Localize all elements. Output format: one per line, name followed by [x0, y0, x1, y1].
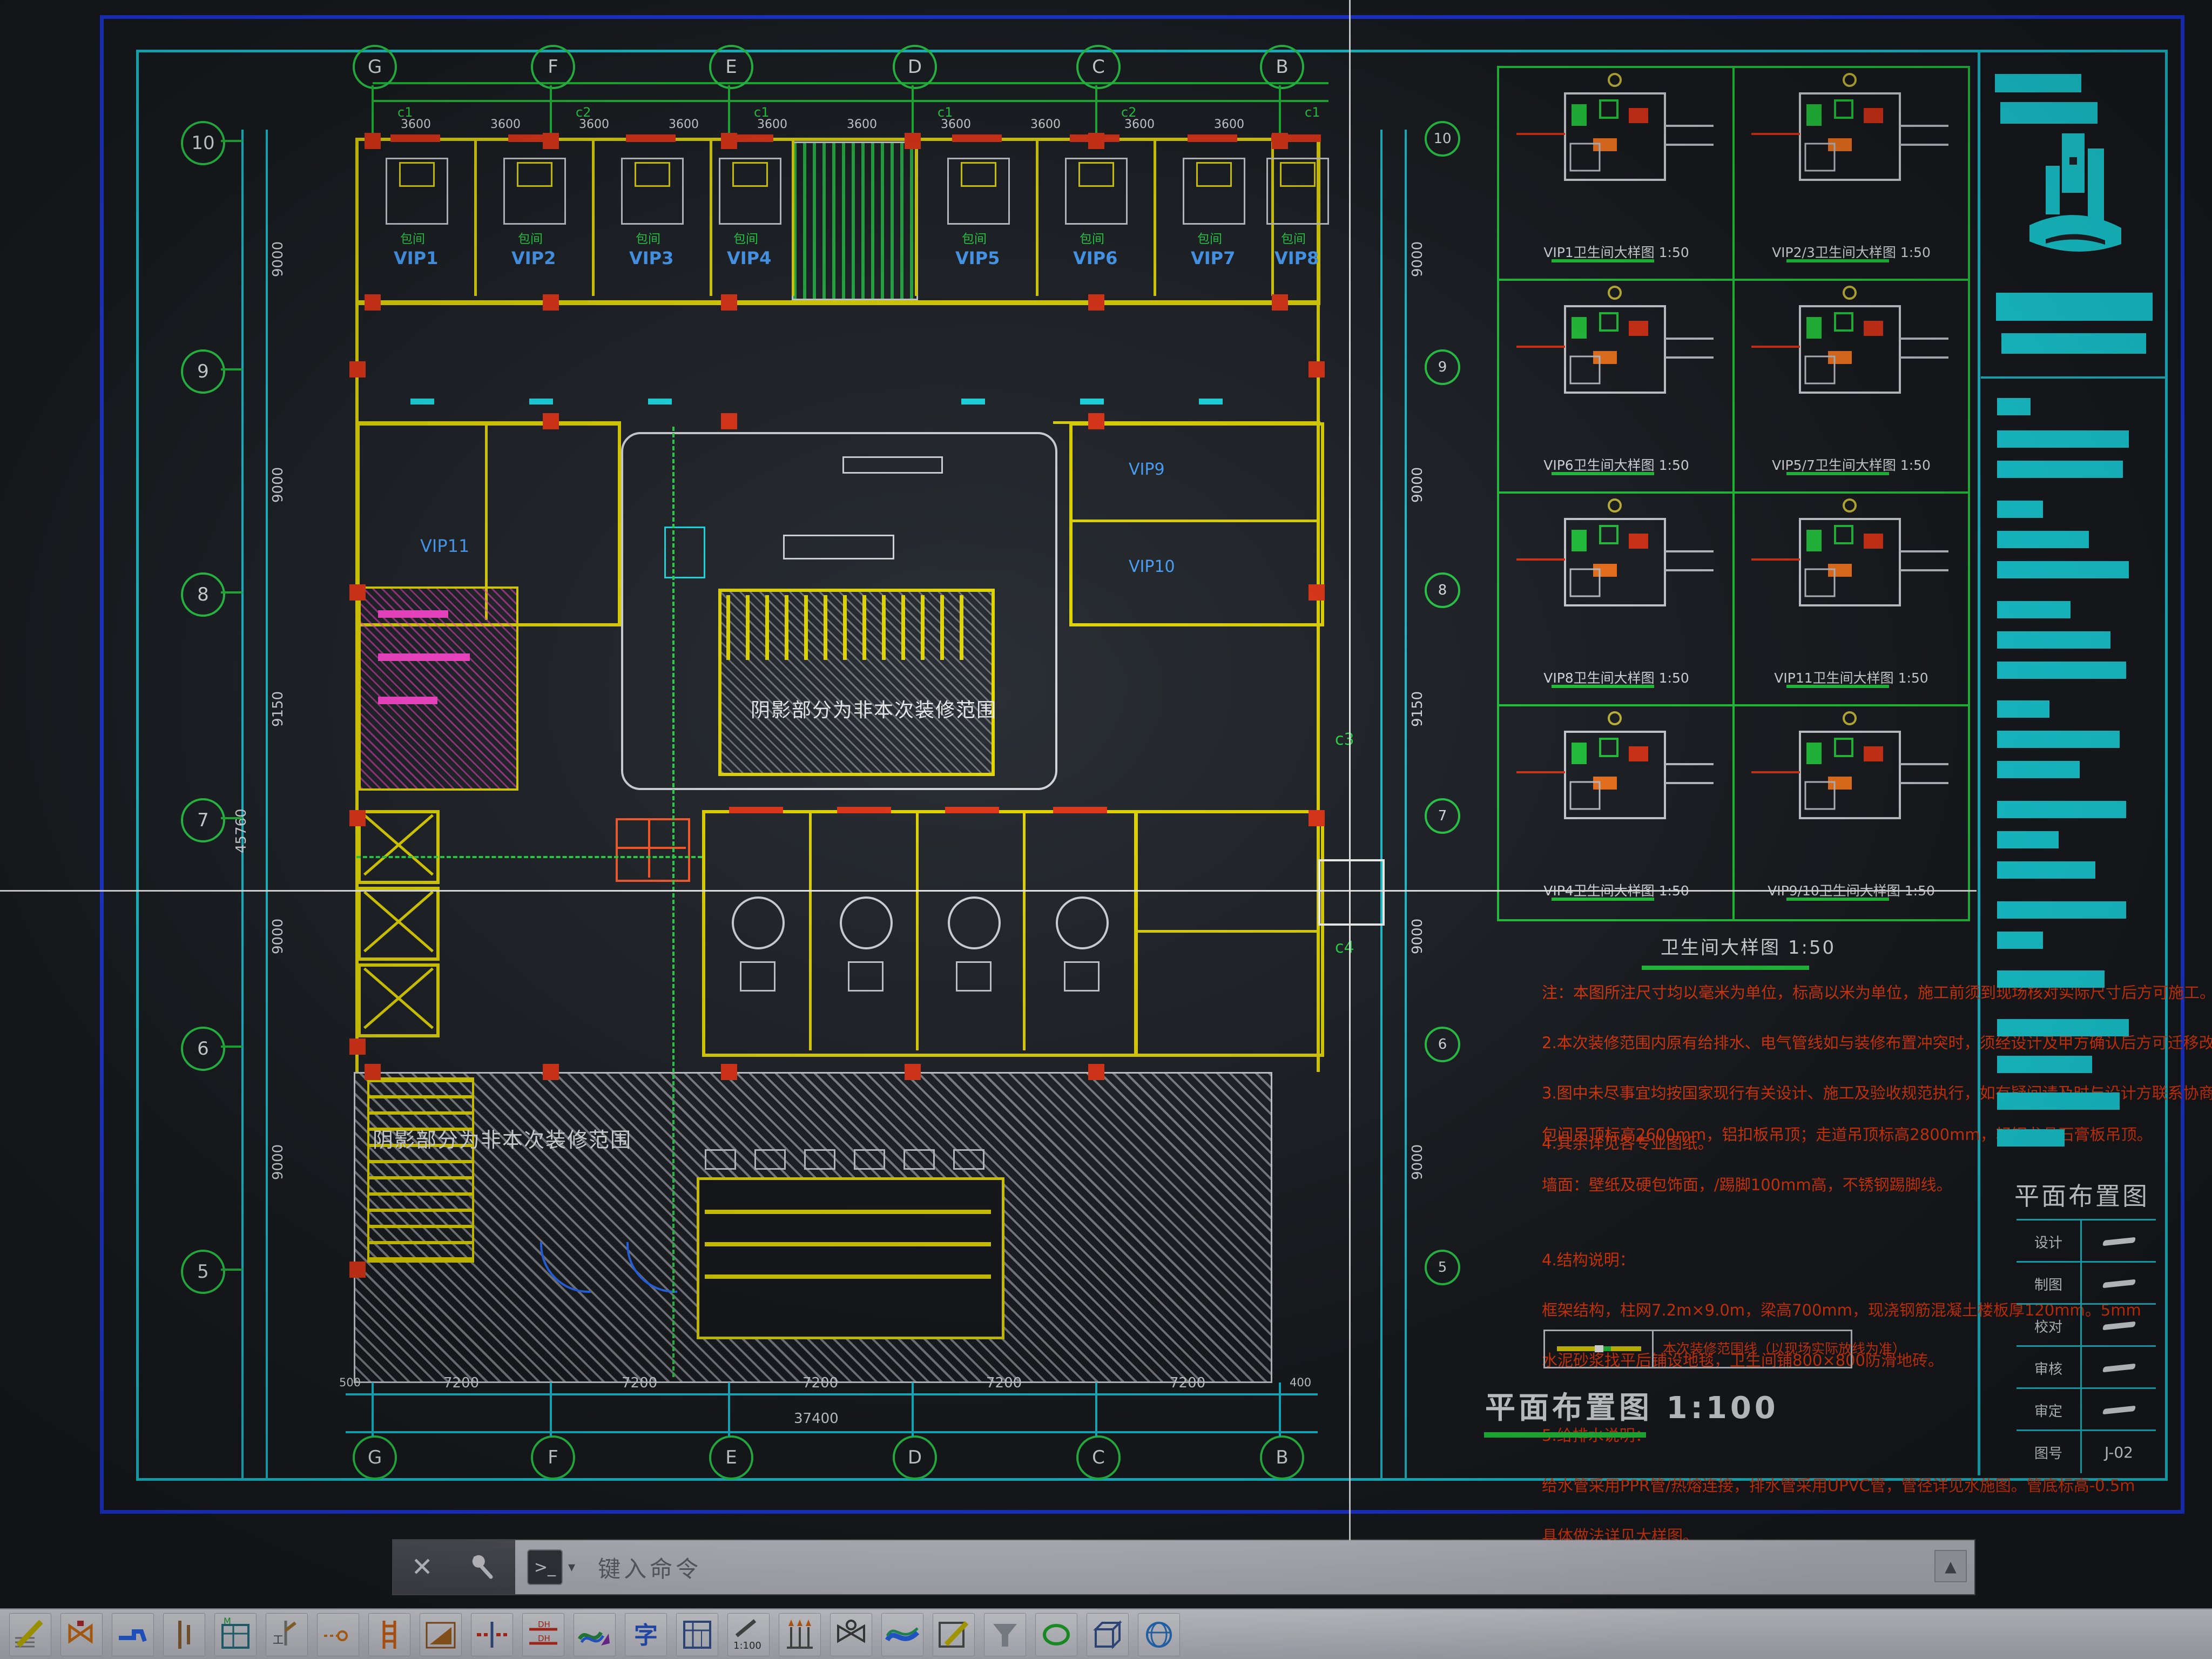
box-3d-button[interactable] [1087, 1613, 1129, 1656]
grid-bubble-bottom-D: D [893, 1435, 937, 1480]
column-marker [543, 133, 559, 149]
column-marker [1309, 584, 1325, 601]
titleblock-row: 设计 [2017, 1219, 2156, 1263]
small-valve-icon [321, 1617, 355, 1652]
room-label-vip7: VIP7 [1191, 249, 1235, 267]
titleblock-row-value [2082, 1347, 2156, 1389]
axis-tag: c1 [397, 106, 413, 119]
bay-dim: 7200 [802, 1375, 838, 1391]
titleblock-row-label: 审定 [2017, 1389, 2082, 1431]
grid-bubble-D: D [893, 45, 937, 89]
titleblock-row-value [2082, 1263, 2156, 1305]
room-tag: 包间 [962, 233, 987, 246]
grid-bubble-row-right-6: 6 [1425, 1027, 1460, 1062]
grid-bubble-E: E [709, 45, 753, 89]
row-dim: 9000 [270, 918, 286, 954]
edit-pencil-icon [936, 1617, 971, 1652]
detail-cell: VIP4卫生间大样图 1:50 [1500, 707, 1732, 918]
grid-bubble-bottom-G: G [353, 1435, 397, 1480]
room-label-vip6: VIP6 [1073, 249, 1117, 267]
room-tag: 包间 [518, 233, 543, 246]
row-dim: 9150 [270, 691, 286, 727]
titleblock-row-value [2082, 1305, 2156, 1347]
grid-bubble-row-right-7: 7 [1425, 798, 1460, 834]
row-dim-right: 9150 [1410, 691, 1426, 727]
close-icon[interactable]: ✕ [411, 1552, 433, 1582]
titleblock-row-value [2082, 1389, 2156, 1431]
pipe-array-icon [783, 1617, 817, 1652]
title-block: 平面布置图 设计制图校对审核审定图号J-02 [1981, 52, 2167, 1478]
detail-caption: VIP8卫生间大样图 1:50 [1500, 667, 1732, 687]
funnel-icon [988, 1617, 1022, 1652]
titleblock-row-label: 设计 [2017, 1220, 2082, 1263]
column-marker [1088, 294, 1104, 311]
titleblock-row: 审核 [2017, 1345, 2156, 1389]
column-marker [1088, 413, 1104, 429]
bay-dim: 7200 [1170, 1375, 1205, 1391]
grid-bubble-row-5: 5 [181, 1250, 225, 1294]
room-label-vip8: VIP8 [1274, 249, 1319, 267]
titleblock-row-label: 审核 [2017, 1347, 2082, 1389]
detail-caption: VIP6卫生间大样图 1:50 [1500, 455, 1732, 474]
titleblock-row-value: J-02 [2082, 1431, 2156, 1473]
hatch-note-lobby: 阴影部分为非本次装修范围 [751, 701, 997, 720]
funnel-button[interactable] [984, 1613, 1026, 1656]
titleblock-row-value [2082, 1220, 2156, 1263]
column-marker [721, 294, 737, 311]
room-label-vip2: VIP2 [511, 249, 556, 267]
grid-bubble-F: F [531, 45, 575, 89]
column-marker [1309, 361, 1325, 377]
command-prompt-icon[interactable]: >_ [527, 1549, 563, 1585]
detail-cell: VIP8卫生间大样图 1:50 [1500, 495, 1732, 705]
grid-bubble-bottom-F: F [531, 1435, 575, 1480]
hatch-pencil-icon [13, 1617, 48, 1652]
row-dim-right: 9000 [1410, 467, 1426, 502]
column-marker [721, 1064, 737, 1080]
detail-cell: VIP6卫生间大样图 1:50 [1500, 282, 1732, 493]
detail-grid-title: 卫生间大样图 1:50 [1661, 939, 1836, 957]
riser-pipe-icon [167, 1617, 201, 1652]
column-marker [349, 361, 366, 377]
paint-brush-button[interactable] [574, 1613, 616, 1656]
crosshair-horizontal [0, 890, 1977, 892]
sheet-title: 平面布置图 1:100 [1485, 1393, 1779, 1424]
grid-bubble-row-right-5: 5 [1425, 1250, 1460, 1285]
room-tag: 包间 [400, 233, 425, 246]
detail-cell: VIP5/7卫生间大样图 1:50 [1735, 282, 1967, 493]
detail-caption: VIP11卫生间大样图 1:50 [1735, 667, 1967, 687]
sphere-icon [1142, 1617, 1176, 1652]
sub-dim: 3600 [847, 118, 877, 131]
command-bar: ✕ >_ ▾ 键入命令 ▲ [393, 1540, 1974, 1594]
column-marker [1088, 1064, 1104, 1080]
room-tag: 包间 [1080, 233, 1104, 246]
row-dim-right: 9000 [1410, 918, 1426, 954]
detail-caption: VIP1卫生间大样图 1:50 [1500, 242, 1732, 261]
row-dim-right: 9000 [1410, 1144, 1426, 1179]
grid-bubble-row-9: 9 [181, 349, 225, 394]
small-valve-button[interactable] [317, 1613, 359, 1656]
room-label-vip4: VIP4 [727, 249, 771, 267]
schedule-form-icon [680, 1617, 714, 1652]
column-marker [365, 294, 381, 311]
valve-button[interactable] [60, 1613, 103, 1656]
pipe-ladder-icon [372, 1617, 407, 1652]
legend-box: 本次装修范围线（以现场实际放线为准） [1543, 1330, 1852, 1368]
detail-caption: VIP5/7卫生间大样图 1:50 [1735, 455, 1967, 474]
crosshair-cursor [1349, 0, 1351, 1582]
hatch-pencil-button[interactable] [9, 1613, 51, 1656]
room-label-vip3: VIP3 [629, 249, 673, 267]
column-marker [1088, 133, 1104, 149]
command-history-up-icon[interactable]: ▲ [1934, 1550, 1967, 1582]
hatch-note-bottom: 阴影部分为非本次装修范围 [373, 1130, 632, 1150]
pipe-ladder-button[interactable] [368, 1613, 410, 1656]
detail-cell: VIP2/3卫生间大样图 1:50 [1735, 69, 1967, 280]
column-marker [905, 1064, 921, 1080]
pipe-tee-button[interactable]: 工 [266, 1613, 308, 1656]
valve-symbol-button[interactable] [830, 1613, 872, 1656]
drawing-canvas[interactable]: 阴影部分为非本次装修范围 阴影部分为非本次装修范围 VIP11 VIP9 VIP… [0, 0, 2212, 1608]
sub-dim: 3600 [1030, 118, 1061, 131]
total-height-dim: 45760 [233, 808, 249, 853]
valve-icon [64, 1617, 99, 1652]
svg-text:1:100: 1:100 [733, 1640, 761, 1651]
pipe-array-button[interactable] [779, 1613, 821, 1656]
svg-text:DH: DH [538, 1620, 550, 1629]
detail-cell: VIP11卫生间大样图 1:50 [1735, 495, 1967, 705]
column-marker [543, 413, 559, 429]
ellipse-icon [1039, 1617, 1074, 1652]
room-tag: 包间 [636, 233, 660, 246]
room-label-vip9: VIP9 [1129, 462, 1165, 478]
svg-text:字: 字 [634, 1622, 658, 1649]
stair-block [792, 141, 918, 300]
mid-right-rooms [1069, 422, 1324, 626]
grid-bubble-row-right-9: 9 [1425, 349, 1460, 385]
pipe-break-button[interactable] [471, 1613, 513, 1656]
ramp-icon [423, 1617, 458, 1652]
row-dim: 9000 [270, 241, 286, 276]
axis-tag-c3: c3 [1335, 732, 1354, 748]
ellipse-button[interactable] [1035, 1613, 1077, 1656]
grid-bubble-row-10: 10 [181, 121, 225, 165]
room-tag: 包间 [1197, 233, 1222, 246]
grid-bubble-C: C [1076, 45, 1121, 89]
titleblock-row: 审定 [2017, 1387, 2156, 1431]
room-label-vip5: VIP5 [955, 249, 1000, 267]
schedule-form-button[interactable] [676, 1613, 718, 1656]
valve-symbol-icon [834, 1617, 868, 1652]
text-style-button[interactable]: 字 [625, 1613, 667, 1656]
room-tag: 包间 [733, 233, 758, 246]
svg-text:工: 工 [273, 1633, 284, 1646]
command-input[interactable]: 键入命令 [598, 1551, 702, 1584]
titleblock-row-label: 制图 [2017, 1263, 2082, 1305]
pipe-tee-icon: 工 [269, 1617, 304, 1652]
riser-pipe-button[interactable] [163, 1613, 205, 1656]
titleblock-row-label: 校对 [2017, 1305, 2082, 1347]
column-marker [1309, 810, 1325, 826]
detail-cell: VIP1卫生间大样图 1:50 [1500, 69, 1732, 280]
axis-tag: c2 [1121, 106, 1136, 119]
detail-views-grid: VIP1卫生间大样图 1:50 VIP2/3卫生间大样图 1:50 VIP6卫生… [1497, 66, 1970, 921]
scale-button[interactable]: 1:100 [727, 1613, 770, 1656]
row-dim: 9000 [270, 467, 286, 502]
sub-dim: 3600 [490, 118, 521, 131]
room-label-vip1: VIP1 [394, 249, 438, 267]
column-marker [349, 584, 366, 601]
ramp-button[interactable] [420, 1613, 462, 1656]
pipe-dim-icon: DHDH [526, 1617, 561, 1652]
column-marker [365, 1064, 381, 1080]
text-style-icon: 字 [629, 1617, 663, 1652]
pickbox [1318, 859, 1385, 926]
titleblock-row: 制图 [2017, 1261, 2156, 1305]
pipe-break-icon [475, 1617, 509, 1652]
axis-tag: c1 [938, 106, 953, 119]
faucet-icon [116, 1617, 150, 1652]
titleblock-drawing-title: 平面布置图 [2014, 1177, 2149, 1212]
grid-bubble-B: B [1260, 45, 1304, 89]
room-label-vip11: VIP11 [420, 537, 469, 555]
column-marker [721, 133, 737, 149]
total-width-dim: 37400 [794, 1411, 839, 1427]
column-marker [365, 133, 381, 149]
scale-icon: 1:100 [731, 1617, 766, 1652]
wave-pipe-button[interactable] [881, 1613, 923, 1656]
box-3d-icon [1090, 1617, 1125, 1652]
column-marker [543, 294, 559, 311]
wrench-icon[interactable] [469, 1553, 497, 1581]
detail-caption: VIP2/3卫生间大样图 1:50 [1735, 242, 1967, 261]
axis-tag-c4: c4 [1335, 940, 1354, 956]
bay-dim: 7200 [986, 1375, 1022, 1391]
edit-pencil-button[interactable] [933, 1613, 975, 1656]
column-marker [543, 1064, 559, 1080]
grid-bubble-row-right-8: 8 [1425, 572, 1460, 608]
detail-cell: VIP9/10卫生间大样图 1:50 [1735, 707, 1967, 918]
grid-bubble-row-6: 6 [181, 1027, 225, 1071]
chevron-down-icon[interactable]: ▾ [568, 1559, 575, 1575]
column-marker [349, 1038, 366, 1055]
row-dim: 9000 [270, 1144, 286, 1179]
command-input-area[interactable]: >_ ▾ 键入命令 ▲ [515, 1540, 1974, 1594]
grid-bubble-row-7: 7 [181, 798, 225, 842]
grid-bubble-row-right-10: 10 [1425, 121, 1460, 157]
bottom-stage [697, 1177, 1004, 1339]
column-marker [905, 133, 921, 149]
bay-dim: 7200 [443, 1375, 479, 1391]
sub-dim: 3600 [669, 118, 699, 131]
cad-application: 阴影部分为非本次装修范围 阴影部分为非本次装修范围 VIP11 VIP9 VIP… [0, 0, 2212, 1659]
material-table-button[interactable]: M [214, 1613, 257, 1656]
row-dim-right: 9000 [1410, 241, 1426, 276]
sphere-button[interactable] [1138, 1613, 1180, 1656]
faucet-button[interactable] [112, 1613, 154, 1656]
titleblock-row: 图号J-02 [2017, 1429, 2156, 1473]
axis-tag: c1 [754, 106, 769, 119]
axis-tag: c2 [576, 106, 591, 119]
command-bar-grip: ✕ [393, 1540, 515, 1594]
room-tag: 包间 [1281, 233, 1306, 246]
wave-pipe-icon [885, 1617, 920, 1652]
legend-label: 本次装修范围线（以现场实际放线为准） [1663, 1342, 1906, 1355]
titleblock-row-label: 图号 [2017, 1431, 2082, 1473]
paint-brush-icon [577, 1617, 612, 1652]
column-marker [1272, 133, 1288, 149]
grid-bubble-G: G [353, 45, 397, 89]
grid-bubble-row-8: 8 [181, 572, 225, 617]
titleblock-row: 校对 [2017, 1303, 2156, 1347]
grid-bubble-bottom-B: B [1260, 1435, 1304, 1480]
bay-dim: 7200 [622, 1375, 657, 1391]
pipe-dim-button[interactable]: DHDH [522, 1613, 564, 1656]
grid-bubble-bottom-C: C [1076, 1435, 1121, 1480]
column-marker [1272, 294, 1288, 311]
room-label-vip10: VIP10 [1129, 559, 1175, 575]
grid-bubble-bottom-E: E [709, 1435, 753, 1480]
svg-text:M: M [224, 1617, 231, 1626]
column-marker [349, 1262, 366, 1278]
material-table-icon: M [218, 1617, 253, 1652]
column-marker [349, 810, 366, 826]
svg-text:DH: DH [538, 1634, 550, 1643]
column-marker [721, 413, 737, 429]
sub-dim: 3600 [1214, 118, 1244, 131]
plugin-toolbar: M工DHDH字1:100 [0, 1608, 2212, 1659]
axis-tag: c1 [1305, 106, 1320, 119]
